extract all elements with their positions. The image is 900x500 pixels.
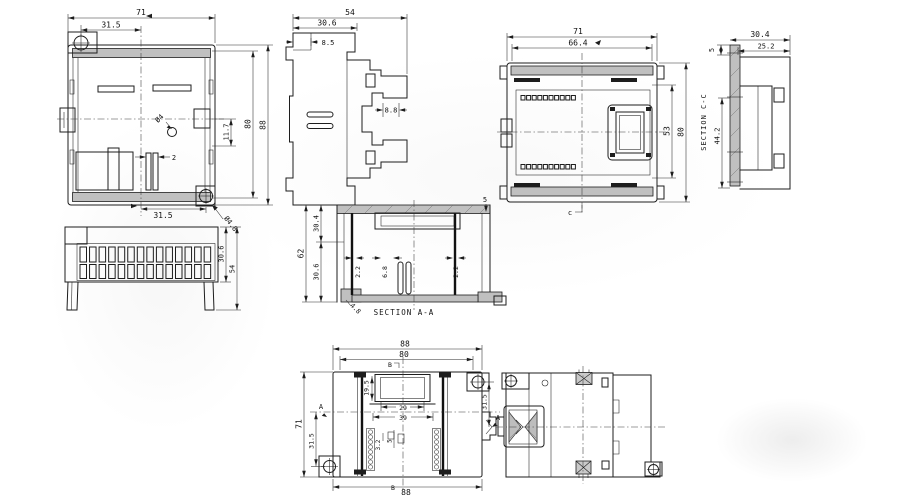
dim-profile-front-depth: 30.6 bbox=[317, 19, 336, 28]
dim-aa-wall-right: 2.2 bbox=[452, 266, 460, 278]
dim-terminal-overall: 54 bbox=[229, 265, 237, 273]
dim-top-height: 71 bbox=[295, 419, 304, 429]
dim-cc-plate: 5 bbox=[708, 48, 716, 52]
dim-aa-foot: 4.8 bbox=[348, 302, 362, 316]
view-front: 71 66.4 80 53 c bbox=[497, 27, 690, 217]
dim-aa-top-lip: 5 bbox=[483, 196, 487, 204]
dim-aa-height: 62 bbox=[297, 249, 306, 259]
dim-rear-hole-offset-top: 31.5 bbox=[101, 21, 120, 30]
dim-rear-hole-dia: Ø4 bbox=[154, 113, 166, 125]
section-cc-label: SECTION C-C bbox=[700, 93, 708, 150]
dim-top-display-depth: 19.5 bbox=[363, 380, 371, 396]
dim-front-inner-height: 53 bbox=[663, 126, 672, 136]
view-profile: 54 30.6 8.5 8.8 bbox=[286, 8, 407, 205]
section-b-mark-top: B bbox=[388, 361, 392, 369]
dim-top-right-offset: 31.5 bbox=[481, 394, 489, 410]
dim-terminal-height: 30.6 bbox=[218, 246, 226, 263]
dim-aa-upper: 30.4 bbox=[313, 215, 321, 232]
dim-rear-slot: 2 bbox=[172, 154, 176, 162]
dim-rear-hole-offset-bottom: 31.5 bbox=[153, 211, 172, 220]
dim-front-overall-height: 80 bbox=[677, 127, 686, 137]
dim-rear-width: 71 bbox=[136, 8, 146, 17]
dim-aa-rib: 6.8 bbox=[381, 266, 389, 278]
dim-front-inner-width: 66.4 bbox=[568, 39, 587, 48]
dim-top-overall-width: 88 bbox=[400, 340, 410, 349]
dim-top-pin: 5 bbox=[387, 439, 394, 443]
dim-top-left-offset: 31.5 bbox=[308, 433, 316, 449]
section-b-mark-bottom: B bbox=[391, 484, 395, 492]
dim-rear-inner-height: 80 bbox=[244, 119, 253, 129]
dim-top-opening-width: 39 bbox=[399, 414, 407, 422]
view-top: 88 80 B 19.5 29 39 3.2 5 31.5 A 71 31.5 … bbox=[295, 340, 501, 498]
view-section-aa: 62 30.4 30.6 2.2 6.8 2.2 4.8 5 SECTION A… bbox=[297, 196, 507, 317]
dim-rear-mid-offset: 11.7 bbox=[223, 124, 231, 141]
dim-front-width: 71 bbox=[573, 27, 583, 36]
view-din-side bbox=[496, 366, 666, 484]
view-section-cc: 30.4 25.2 5 44.2 SECTION C-C bbox=[700, 30, 790, 189]
dim-cc-depth: 30.4 bbox=[750, 30, 769, 39]
dim-cc-inner-depth: 25.2 bbox=[758, 43, 775, 51]
view-terminal: 30.6 54 bbox=[65, 227, 241, 310]
dim-top-overall-width-bottom: 88 bbox=[401, 488, 411, 497]
dim-profile-lip: 8.5 bbox=[322, 39, 335, 47]
technical-drawing: 71 31.5 80 88 11.7 Ø4 2 31.5 Ø4.8 54 30.… bbox=[0, 0, 900, 500]
dim-profile-depth: 54 bbox=[345, 8, 355, 17]
dim-aa-lower: 30.6 bbox=[313, 264, 321, 281]
view-rear: 71 31.5 80 88 11.7 Ø4 2 31.5 Ø4.8 bbox=[57, 8, 273, 233]
dim-top-display-width: 29 bbox=[399, 404, 407, 412]
dim-cc-height: 44.2 bbox=[714, 128, 722, 145]
section-aa-label: SECTION A-A bbox=[374, 308, 435, 317]
dim-top-pitch: 3.2 bbox=[375, 439, 382, 450]
dim-top-body-width: 80 bbox=[399, 350, 409, 359]
dim-aa-wall-left: 2.2 bbox=[354, 266, 362, 278]
drawing-canvas: 71 31.5 80 88 11.7 Ø4 2 31.5 Ø4.8 54 30.… bbox=[0, 0, 900, 500]
section-a-mark-left: A bbox=[319, 403, 324, 411]
dim-rear-overall-height: 88 bbox=[259, 120, 268, 130]
dim-profile-rail-gap: 8.8 bbox=[385, 107, 398, 115]
section-c-mark: c bbox=[568, 209, 572, 217]
